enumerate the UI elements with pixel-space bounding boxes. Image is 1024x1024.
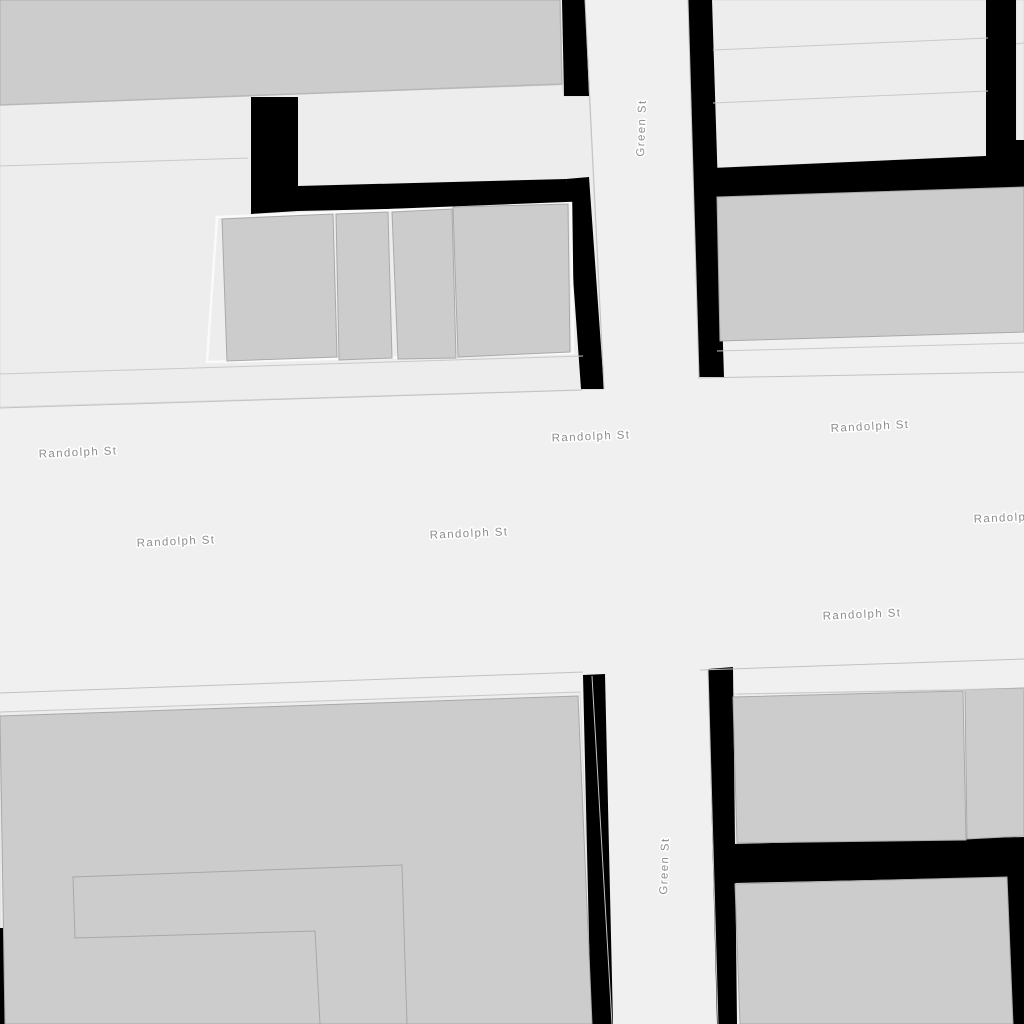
building-row-2: [336, 212, 392, 360]
street-label-randolph-st-7: Randolph St: [973, 510, 1024, 525]
building-southeast-3: [735, 877, 1013, 1024]
parcel-northeast-rows: [712, 0, 988, 168]
map-svg: Randolph St Randolph St Randolph St Rand…: [0, 0, 1024, 1024]
building-southwest-large: [0, 696, 592, 1024]
street-label-green-st-south: Green St: [658, 837, 672, 895]
building-northeast-large: [717, 187, 1024, 341]
street-label-green-st-north: Green St: [635, 99, 649, 157]
gap-northwest-block: [251, 97, 298, 214]
building-southeast-2: [965, 688, 1024, 839]
building-row-4: [453, 204, 570, 357]
building-row-3: [392, 209, 456, 359]
building-row-1: [222, 214, 337, 361]
parcel-northeast-sliver: [1016, 0, 1024, 141]
map-canvas[interactable]: Randolph St Randolph St Randolph St Rand…: [0, 0, 1024, 1024]
building-southeast-1: [733, 691, 966, 843]
gap-green-st-west-top: [562, 0, 589, 96]
